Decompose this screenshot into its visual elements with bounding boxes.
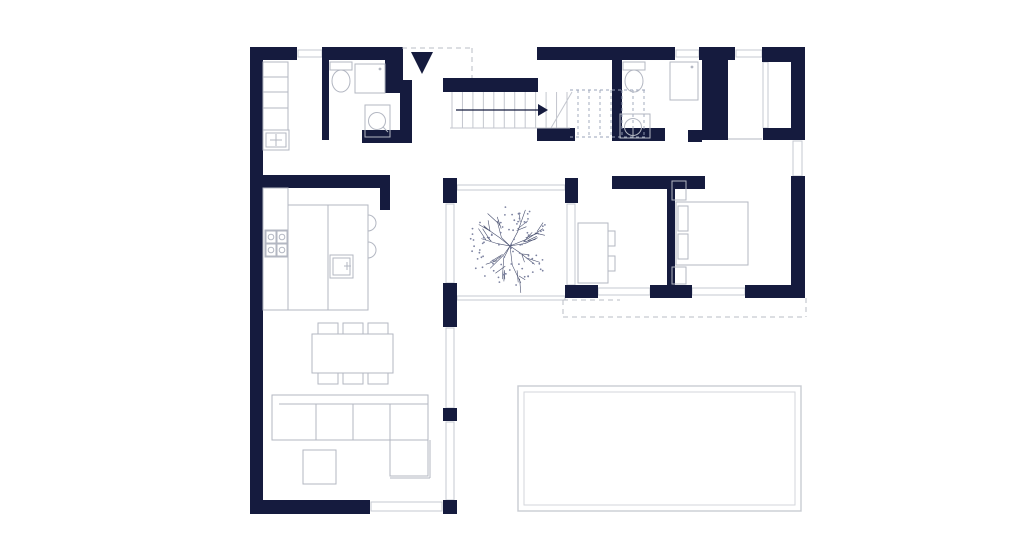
glazing-living-east-1 [446,328,454,408]
tree-leaf-dot [519,252,521,254]
tree-twig [517,270,518,282]
dresser-knob-2 [608,256,615,271]
tree-leaf-dot [505,206,507,208]
south-wall [250,500,370,514]
tree-leaf-dot [510,243,512,245]
tree-leaf-dot [502,226,504,228]
burner-frame-2 [277,231,287,243]
tree-leaf-dot [482,266,484,268]
top-wall-b [322,47,403,60]
burner-2 [279,234,285,240]
bar-stool-1 [368,215,376,231]
burner-frame-4 [277,244,287,256]
courtyard-tree [470,206,546,293]
courtyard-west-post-b [443,283,457,327]
tree-twig [478,229,486,240]
stair-break-line [551,92,572,128]
utility-shelf-b [263,108,288,130]
right-wall-upper [791,60,805,140]
tree-leaf-dot [482,255,484,257]
bedroom-south-wall-b [650,285,692,298]
tree-leaf-dot [525,241,527,243]
dining-chair-1 [318,323,338,334]
wardrobe-bottom-arm [763,128,791,140]
tree-leaf-dot [528,234,530,236]
burner-frame-3 [266,244,276,256]
pool-inner-edge [524,392,795,505]
tree-leaf-dot [479,252,481,254]
pool-outer-edge [518,386,801,511]
tree-leaf-dot [542,225,544,227]
burner-frame-1 [266,231,276,243]
window-top-1 [298,50,322,57]
dining-chair-4 [318,373,338,384]
right-wall-lower [791,176,805,298]
floor-plan-canvas [0,0,1024,551]
tree-leaf-dot [477,258,479,260]
closet-pier [702,60,728,140]
tree-leaf-dot [472,228,474,230]
window-south [371,502,442,511]
bath1-east-step [385,80,412,93]
burner-3 [268,247,274,253]
tree-leaf-dot [508,229,510,231]
tree-leaf-dot [473,239,475,241]
tree-leaf-dot [499,281,501,283]
window-bedroom-south-1 [598,288,650,295]
tree-leaf-dot [511,214,513,216]
tree-leaf-dot [503,256,505,258]
courtyard-east-post [565,178,578,203]
glazing-courtyard-east [567,204,575,285]
tree-leaf-dot [484,275,486,277]
toilet2-bowl [625,70,643,92]
bedroom-north-wall [612,176,705,189]
bedroom-divider-wall [667,189,675,298]
tree-leaf-dot [500,232,502,234]
tree-leaf-dot [515,284,517,286]
tree-leaf-dot [527,276,529,278]
window-bedroom-south-2 [692,288,745,295]
entry-arrow [411,52,433,74]
tree-leaf-dot [488,237,490,239]
tree-leaf-dot [512,229,514,231]
tree-leaf-dot [527,232,529,234]
tree-leaf-dot [481,256,483,258]
tree-leaf-dot [504,214,506,216]
bed-pillow-2 [678,234,688,259]
tree-leaf-dot [479,222,481,224]
tree-leaf-dot [500,222,502,224]
kitchen-north-wall [263,175,390,188]
wardrobe-top-arm [762,47,805,62]
walls-layer [250,47,805,514]
tree-leaf-dot [492,260,494,262]
tree-leaf-dot [527,258,529,260]
toilet2-tank [623,62,645,70]
tree-leaf-dot [538,263,540,265]
tree-leaf-dot [527,213,529,215]
courtyard-south-edge [457,296,565,300]
bar-stool-2 [368,242,376,258]
utility-shelf-a [263,62,288,108]
dining-table [312,334,393,373]
tree-leaf-dot [516,223,518,225]
glazing-living-east-2 [446,422,454,500]
courtyard-west-post-a [443,178,457,203]
tree-leaf-dot [525,222,527,224]
tree-leaf-dot [519,218,521,220]
tree-leaf-dot [509,269,511,271]
wardrobe-niche-glazing [763,62,768,128]
dresser [578,223,608,283]
tree-leaf-dot [510,263,512,265]
tree-twig [526,233,538,238]
tree-leaf-dot [500,264,502,266]
tree-leaf-dot [532,271,534,273]
tree-leaf-dot [542,229,544,231]
courtyard-west-post-c [443,408,457,421]
tree-leaf-dot [513,219,515,221]
tree-leaf-dot [483,237,485,239]
top-wall-a [250,47,297,60]
tree-leaf-dot [498,277,500,279]
tree-leaf-dot [518,213,520,215]
tree-leaf-dot [540,230,542,232]
shower1-head [379,68,382,71]
tree-leaf-dot [532,262,534,264]
tree-leaf-dot [524,276,526,278]
tree-leaf-dot [475,267,477,269]
tree-leaf-dot [492,263,494,265]
burner-1 [268,234,274,240]
entrance-arrow-icon [411,52,433,74]
tree-leaf-dot [540,268,542,270]
dresser-knob-1 [608,231,615,246]
window-top-2 [676,50,699,57]
tree-leaf-dot [544,224,546,226]
furniture-layer [263,62,762,484]
sofa-body [272,395,428,440]
window-top-3 [736,50,762,57]
shower2-head [691,66,694,69]
tree-leaf-dot [518,263,520,265]
tree-leaf-dot [513,238,515,240]
dining-chair-5 [343,373,363,384]
tree-leaf-dot [535,255,537,257]
top-wall-d [699,47,735,60]
tree-leaf-dot [479,249,481,251]
swimming-pool [518,386,801,511]
dining-chair-2 [343,323,363,334]
bed-pillow-1 [678,206,688,231]
kitchen-wall-stub [380,188,390,210]
tree-leaf-dot [521,268,523,270]
tree-leaf-dot [517,221,519,223]
bath2-south-east [688,130,702,142]
tree-leaf-dot [482,243,484,245]
tree-leaf-dot [498,244,500,246]
tree-leaf-dot [512,251,514,253]
sofa-chaise [390,440,428,476]
tree-leaf-dot [542,259,544,261]
washer-drum [369,113,386,130]
window-right [793,141,802,176]
burner-4 [279,247,285,253]
coffee-table [303,450,336,484]
hall-wall-a [537,128,575,141]
tree-leaf-dot [473,245,475,247]
tree-leaf-dot [527,218,529,220]
tree-leaf-dot [472,233,474,235]
tree-leaf-dot [521,244,523,246]
top-wall-c [537,47,675,60]
tree-twig [520,279,521,293]
tree-leaf-dot [537,233,539,235]
toilet1-tank [330,62,352,70]
tree-leaf-dot [505,273,507,275]
bedroom-south-wall-a [565,285,598,298]
tree-leaf-dot [470,238,472,240]
living-southeast-post [443,500,457,514]
left-exterior-wall [250,47,263,514]
shower2-tray [670,62,698,100]
tree-twig [488,214,499,224]
bedroom-south-wall-c [745,285,805,298]
dining-chair-6 [368,373,388,384]
tree-leaf-dot [491,234,493,236]
toilet1-bowl [332,70,350,92]
tree-leaf-dot [493,270,495,272]
tree-leaf-dot [542,270,544,272]
tree-leaf-dot [524,221,526,223]
tree-leaf-dot [519,244,521,246]
floor-plan-page [0,0,1024,551]
tree-leaf-dot [528,255,530,257]
tree-leaf-dot [471,250,473,252]
utility-bath-partition [322,60,329,140]
bath1-east-wall-upper [385,60,402,80]
dining-chair-3 [368,323,388,334]
tree-leaf-dot [510,247,512,249]
stairwell-north-wall [443,78,538,92]
glazing-courtyard-north [457,185,565,190]
tree-leaf-dot [531,258,533,260]
tree-leaf-dot [529,211,531,213]
glazing-courtyard-west [446,204,454,283]
